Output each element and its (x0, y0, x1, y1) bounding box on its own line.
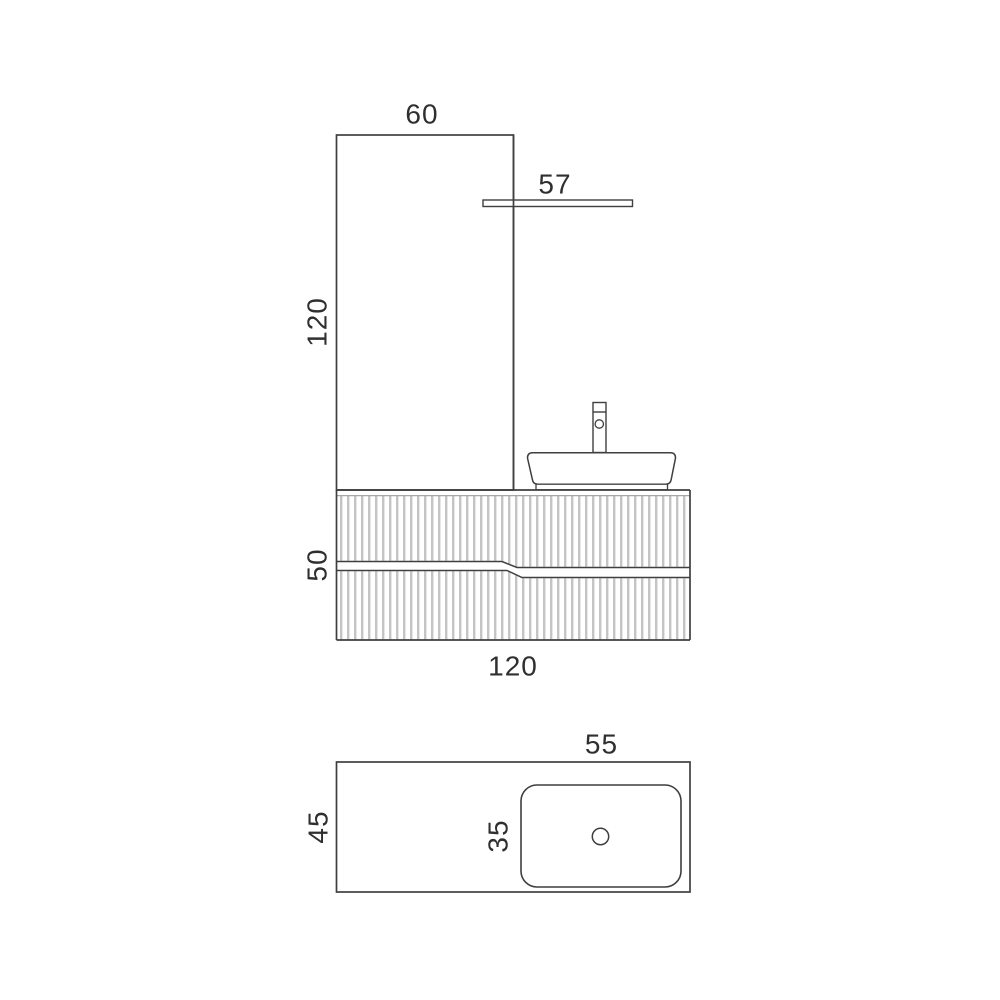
vessel-basin-front (528, 453, 676, 484)
faucet-body (593, 403, 606, 453)
dim-shelf-length: 57 (538, 169, 571, 200)
faucet (593, 403, 606, 453)
plan-view: 55 45 35 (303, 729, 691, 893)
dim-panel-width: 60 (405, 99, 438, 130)
drawing-canvas: 60 120 57 50 120 55 45 35 (0, 0, 1000, 1000)
side-panel (337, 135, 514, 490)
dim-basin-width: 55 (585, 729, 618, 760)
shelf (483, 200, 633, 207)
dim-basin-depth: 35 (483, 819, 514, 852)
vanity-technical-drawing: 60 120 57 50 120 55 45 35 (0, 0, 1000, 1000)
front-elevation-view: 60 120 57 50 120 (302, 99, 691, 682)
basin-base (536, 484, 668, 490)
dim-unit-depth: 45 (303, 810, 334, 843)
basin-plan (521, 785, 681, 887)
dim-panel-height: 120 (302, 297, 333, 347)
dim-cabinet-width: 120 (488, 651, 538, 682)
dim-cabinet-height: 50 (302, 548, 333, 581)
